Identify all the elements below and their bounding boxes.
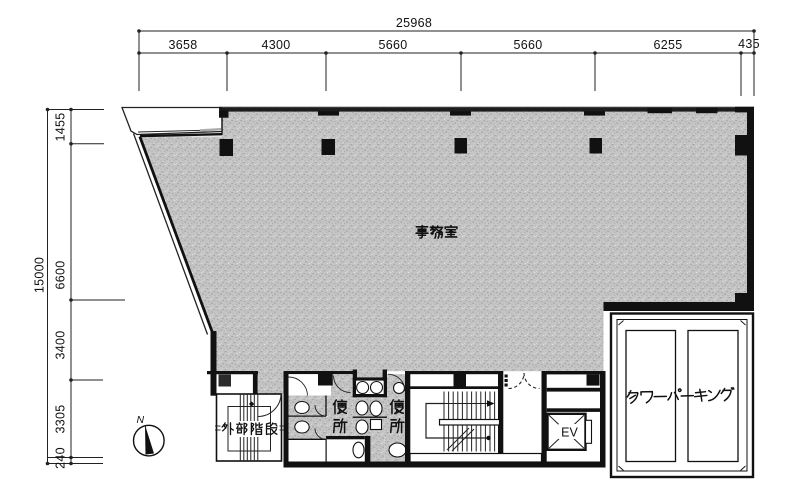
svg-text:15000: 15000 <box>33 257 47 293</box>
svg-text:4300: 4300 <box>261 38 290 52</box>
svg-text:3305: 3305 <box>54 404 68 433</box>
svg-text:240: 240 <box>54 447 68 469</box>
svg-text:5660: 5660 <box>378 38 407 52</box>
svg-text:6600: 6600 <box>54 260 68 289</box>
svg-text:EV: EV <box>561 426 578 440</box>
svg-text:N: N <box>137 414 145 426</box>
svg-text:3400: 3400 <box>54 330 68 359</box>
svg-text:25968: 25968 <box>396 16 432 30</box>
svg-text:5660: 5660 <box>513 38 542 52</box>
svg-text:6255: 6255 <box>653 38 682 52</box>
svg-text:3658: 3658 <box>168 38 197 52</box>
svg-text:1455: 1455 <box>54 112 68 141</box>
svg-text:435: 435 <box>738 37 760 51</box>
